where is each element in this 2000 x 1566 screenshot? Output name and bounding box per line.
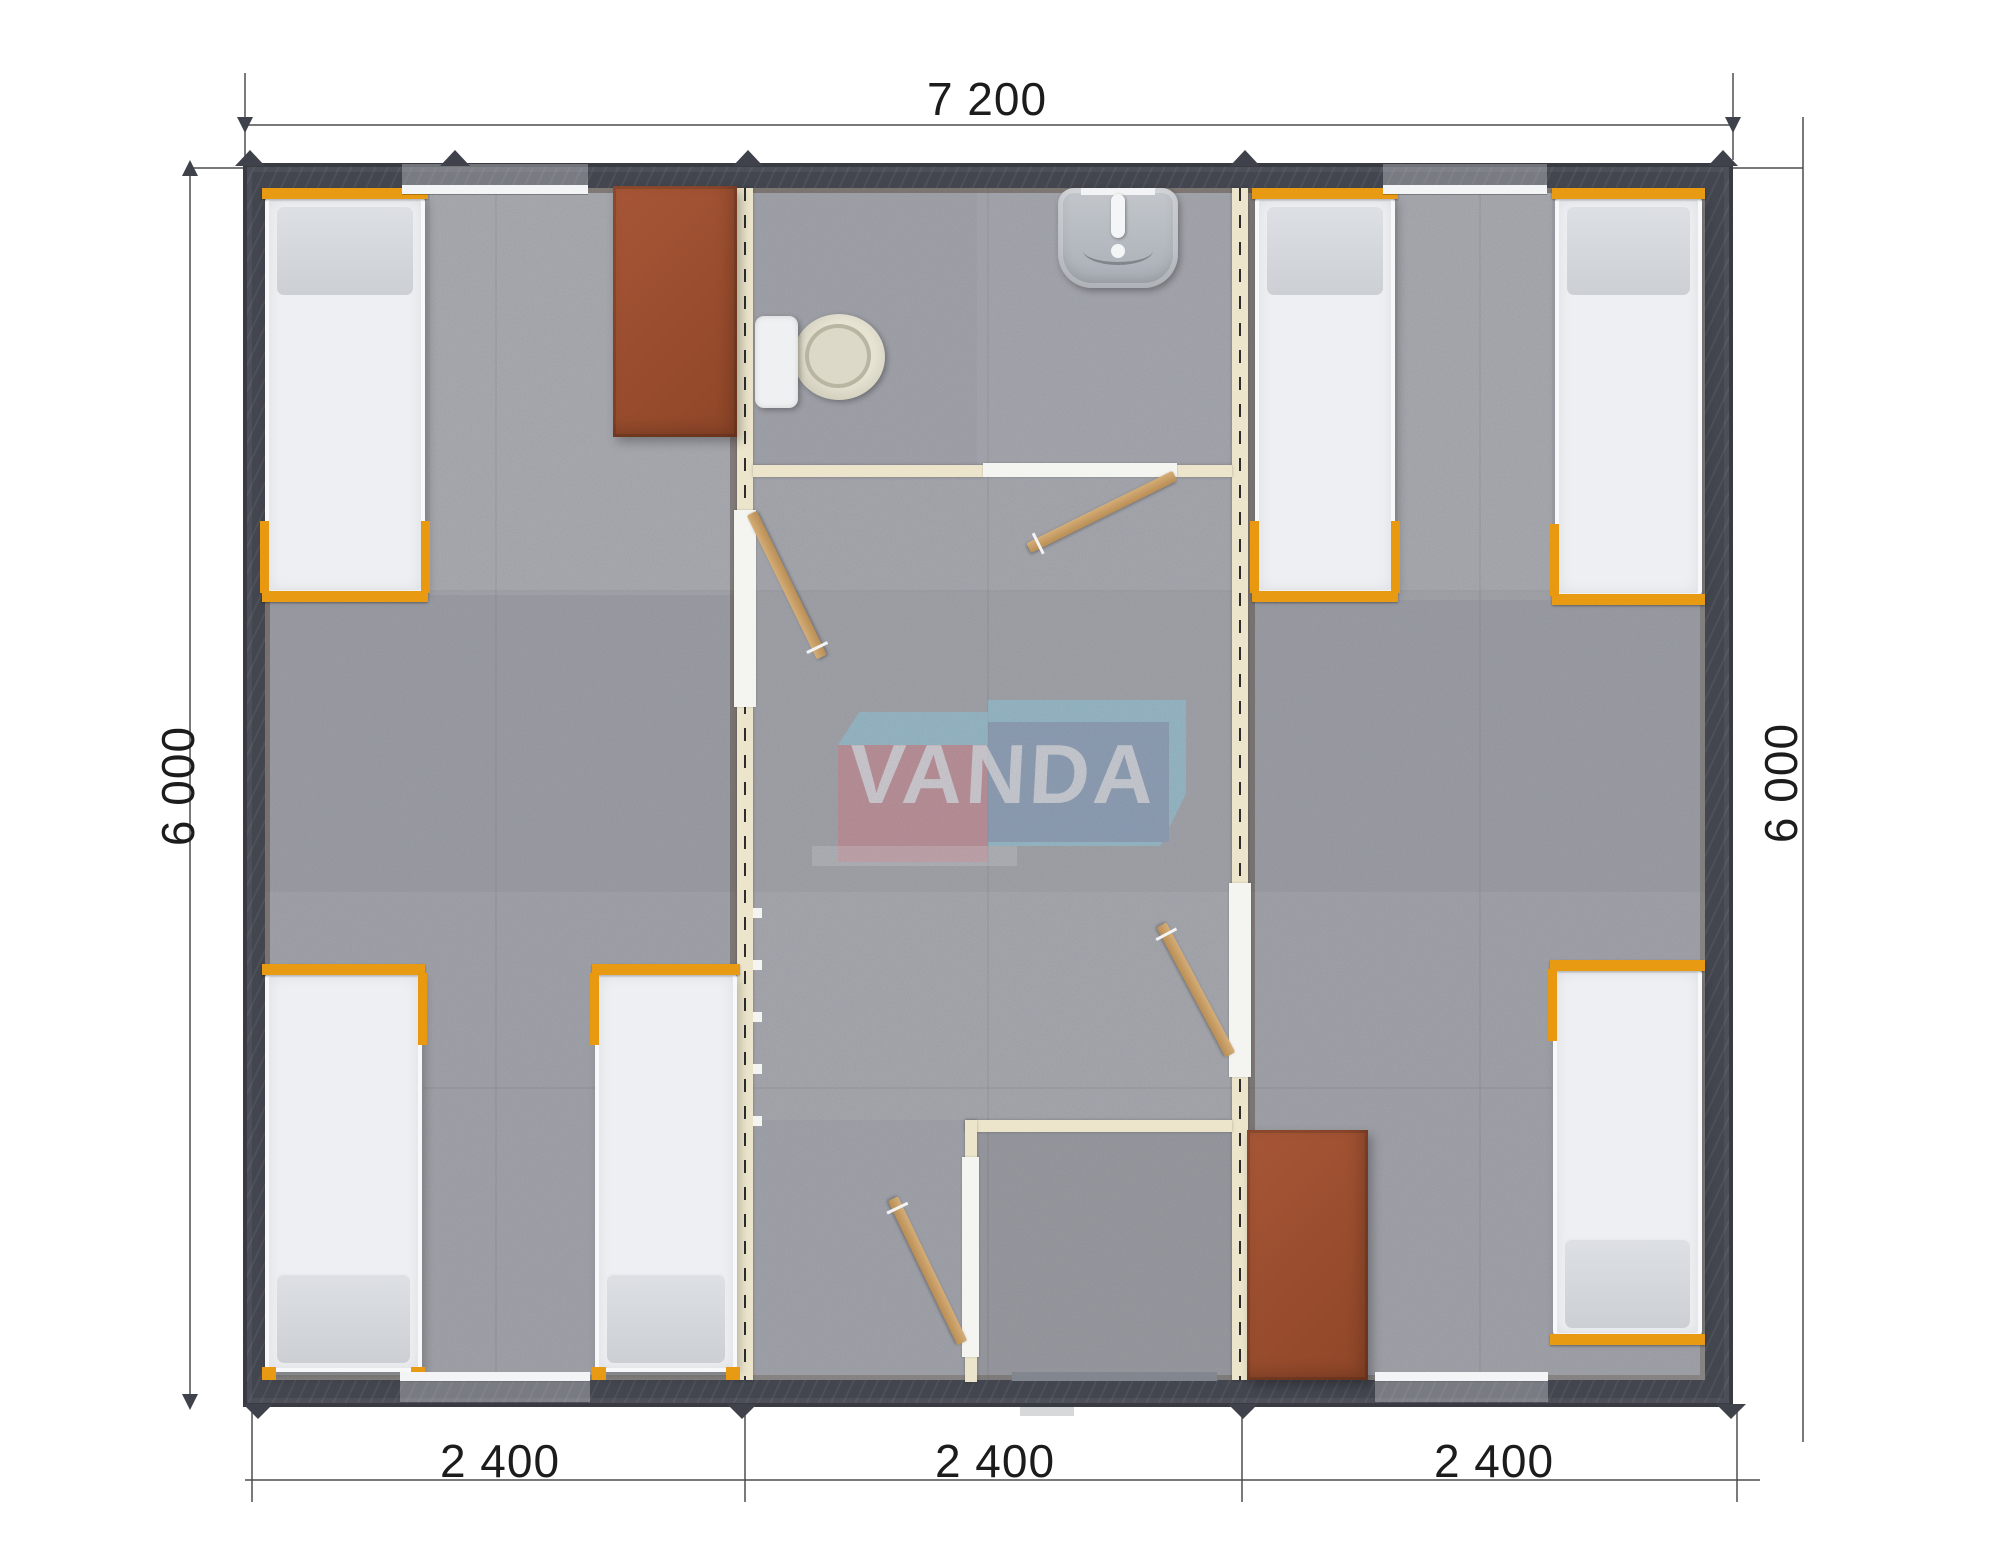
- bed-frame-bar: [1252, 188, 1398, 199]
- window-top-left: [402, 164, 588, 185]
- bed-frame-bar: [1552, 594, 1705, 605]
- sink: [1058, 188, 1178, 288]
- faucet-icon: [1111, 194, 1125, 238]
- bed-frame-bar: [1550, 960, 1705, 971]
- stud-tab: [753, 1064, 762, 1074]
- window-top-right: [1383, 164, 1547, 185]
- stud-tab: [753, 1116, 762, 1126]
- window-bottom-right: [1375, 1372, 1548, 1381]
- pillow: [1565, 1238, 1690, 1328]
- entrance-threshold: [1012, 1372, 1217, 1381]
- toilet-seat: [805, 324, 871, 388]
- bed-frame-bar: [262, 964, 425, 975]
- pillow: [1567, 205, 1690, 295]
- bed-frame-bar: [262, 591, 428, 602]
- bed-left-top: [262, 188, 428, 602]
- dimension-label-right-height: 6 000: [1756, 713, 1806, 853]
- door-casing-bathroom: [983, 463, 1177, 477]
- shower-enclosure: [977, 1132, 1232, 1380]
- bed-post: [421, 521, 430, 593]
- stud-wall-centerline: [744, 188, 746, 1380]
- window-glass: [1375, 1381, 1548, 1402]
- bed-corner: [262, 1367, 276, 1380]
- bathroom-wall: [753, 465, 983, 477]
- stud-tab: [753, 960, 762, 970]
- bathroom-wall: [1177, 465, 1232, 477]
- stud-wall-centerline: [1239, 188, 1241, 1380]
- pillow: [1267, 205, 1383, 295]
- bed-left-bottom-2: [592, 964, 740, 1380]
- bed-frame-bar: [1552, 188, 1705, 199]
- shower-wall-top: [965, 1120, 1232, 1132]
- bed-frame-bar: [592, 964, 740, 975]
- stud-tab: [753, 1012, 762, 1022]
- door-casing-left-room: [734, 510, 756, 707]
- dimension-label-top-width: 7 200: [917, 72, 1057, 126]
- entrance-step: [1020, 1407, 1074, 1416]
- dimension-label-module-1: 2 400: [430, 1434, 570, 1488]
- bed-post: [590, 973, 599, 1045]
- bed-corner: [726, 1367, 740, 1380]
- bed-post: [1548, 969, 1557, 1041]
- window-glass: [400, 1381, 590, 1402]
- dimension-label-module-3: 2 400: [1424, 1434, 1564, 1488]
- bed-frame-bar: [1550, 1334, 1705, 1345]
- dimension-label-module-2: 2 400: [925, 1434, 1065, 1488]
- desk-left-room: [613, 186, 737, 437]
- bed-post: [418, 973, 427, 1045]
- bed-right-top-1: [1252, 188, 1398, 602]
- bed-post: [260, 521, 269, 593]
- desk-right-room: [1247, 1130, 1368, 1380]
- door-casing-shower: [962, 1157, 979, 1357]
- window-sill: [1383, 185, 1547, 194]
- bed-post: [1250, 521, 1259, 593]
- window-bottom-left: [400, 1372, 590, 1381]
- stud-tab: [753, 908, 762, 918]
- bed-right-top-2: [1552, 188, 1705, 605]
- floor-plan: VANDA: [0, 0, 2000, 1566]
- toilet: [753, 312, 888, 410]
- logo-shadow: [812, 846, 1017, 866]
- partition-wall-right: [1232, 188, 1248, 1380]
- bed-right-bottom: [1550, 960, 1705, 1345]
- vanda-watermark: VANDA: [812, 696, 1197, 871]
- pillow: [607, 1273, 725, 1363]
- bed-left-bottom-1: [262, 964, 425, 1380]
- bed-post: [1391, 521, 1400, 593]
- bed-post: [1550, 524, 1559, 596]
- dimension-label-left-height: 6 000: [153, 716, 203, 856]
- bed-corner: [592, 1367, 606, 1380]
- faucet-knob: [1111, 244, 1125, 258]
- window-sill: [402, 185, 588, 194]
- toilet-tank: [755, 316, 798, 408]
- bed-frame-bar: [1252, 591, 1398, 602]
- logo-text: VANDA: [815, 726, 1190, 823]
- pillow: [277, 1273, 410, 1363]
- pillow: [277, 205, 413, 295]
